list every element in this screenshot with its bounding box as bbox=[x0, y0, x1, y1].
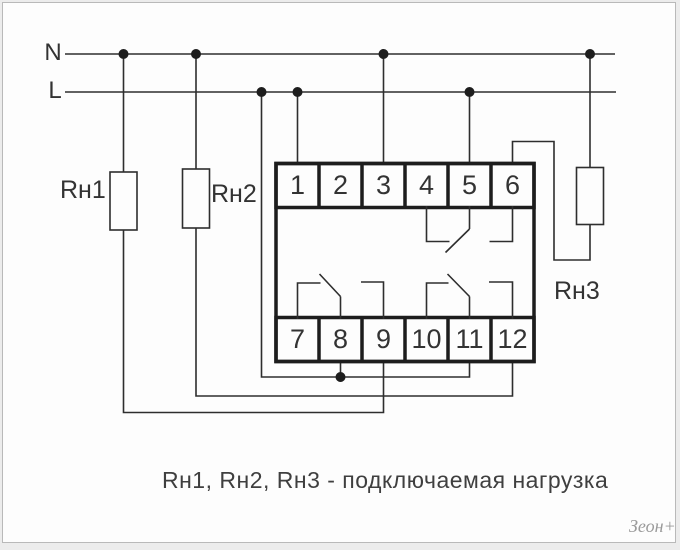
terminal-10: 10 bbox=[405, 318, 448, 361]
terminal-7: 7 bbox=[276, 318, 319, 361]
junction-dot bbox=[585, 49, 595, 59]
contact-6-fixed bbox=[490, 206, 513, 242]
terminal-6: 6 bbox=[491, 164, 534, 207]
contact-10-11-12 bbox=[427, 274, 513, 319]
contact-9-fixed bbox=[361, 282, 384, 319]
terminal-11: 11 bbox=[448, 318, 491, 361]
terminal-4: 4 bbox=[405, 164, 448, 207]
contact-8-blade bbox=[320, 274, 341, 297]
junction-dot bbox=[465, 87, 475, 97]
load-rn1-label: Rн1 bbox=[60, 177, 106, 203]
terminal-9: 9 bbox=[362, 318, 405, 361]
terminal-numbers-bottom: 789101112 bbox=[276, 318, 534, 361]
contact-4-5-6 bbox=[427, 206, 513, 253]
load-rn3-symbol bbox=[577, 168, 604, 225]
phase-label: L bbox=[42, 78, 68, 104]
terminal-5: 5 bbox=[448, 164, 491, 207]
contact-10-fixed bbox=[427, 283, 449, 319]
contact-11-blade bbox=[448, 274, 470, 297]
load-rn1-symbol bbox=[110, 172, 137, 230]
load-rn3-label: Rн3 bbox=[554, 278, 600, 304]
terminal-2: 2 bbox=[319, 164, 362, 207]
contact-7-fixed bbox=[298, 283, 321, 319]
terminal-12: 12 bbox=[491, 318, 534, 361]
load-rn2-label: Rн2 bbox=[211, 181, 257, 207]
terminal-numbers-top: 123456 bbox=[276, 164, 534, 207]
junction-dot bbox=[293, 87, 303, 97]
neutral-label: N bbox=[40, 40, 66, 66]
diagram-caption: Rн1, Rн2, Rн3 - подключаемая нагрузка bbox=[162, 467, 608, 494]
load-rn2-symbol bbox=[183, 169, 210, 228]
junction-dot bbox=[257, 87, 267, 97]
wire-rn2-to-terminal-12 bbox=[196, 228, 513, 396]
junction-dot bbox=[119, 49, 129, 59]
junction-dot bbox=[379, 49, 389, 59]
terminal-3: 3 bbox=[362, 164, 405, 207]
terminal-1: 1 bbox=[276, 164, 319, 207]
contact-4-fixed bbox=[427, 206, 450, 242]
watermark: Зеон+ bbox=[629, 516, 676, 537]
junction-dot bbox=[336, 372, 346, 382]
junction-dot bbox=[191, 49, 201, 59]
contact-7-8-9 bbox=[298, 274, 384, 319]
wiring-diagram-canvas: N L Rн1 Rн2 Rн3 123456 789101112 Rн1, Rн… bbox=[0, 0, 680, 550]
terminal-8: 8 bbox=[319, 318, 362, 361]
contact-12-fixed bbox=[489, 282, 513, 319]
